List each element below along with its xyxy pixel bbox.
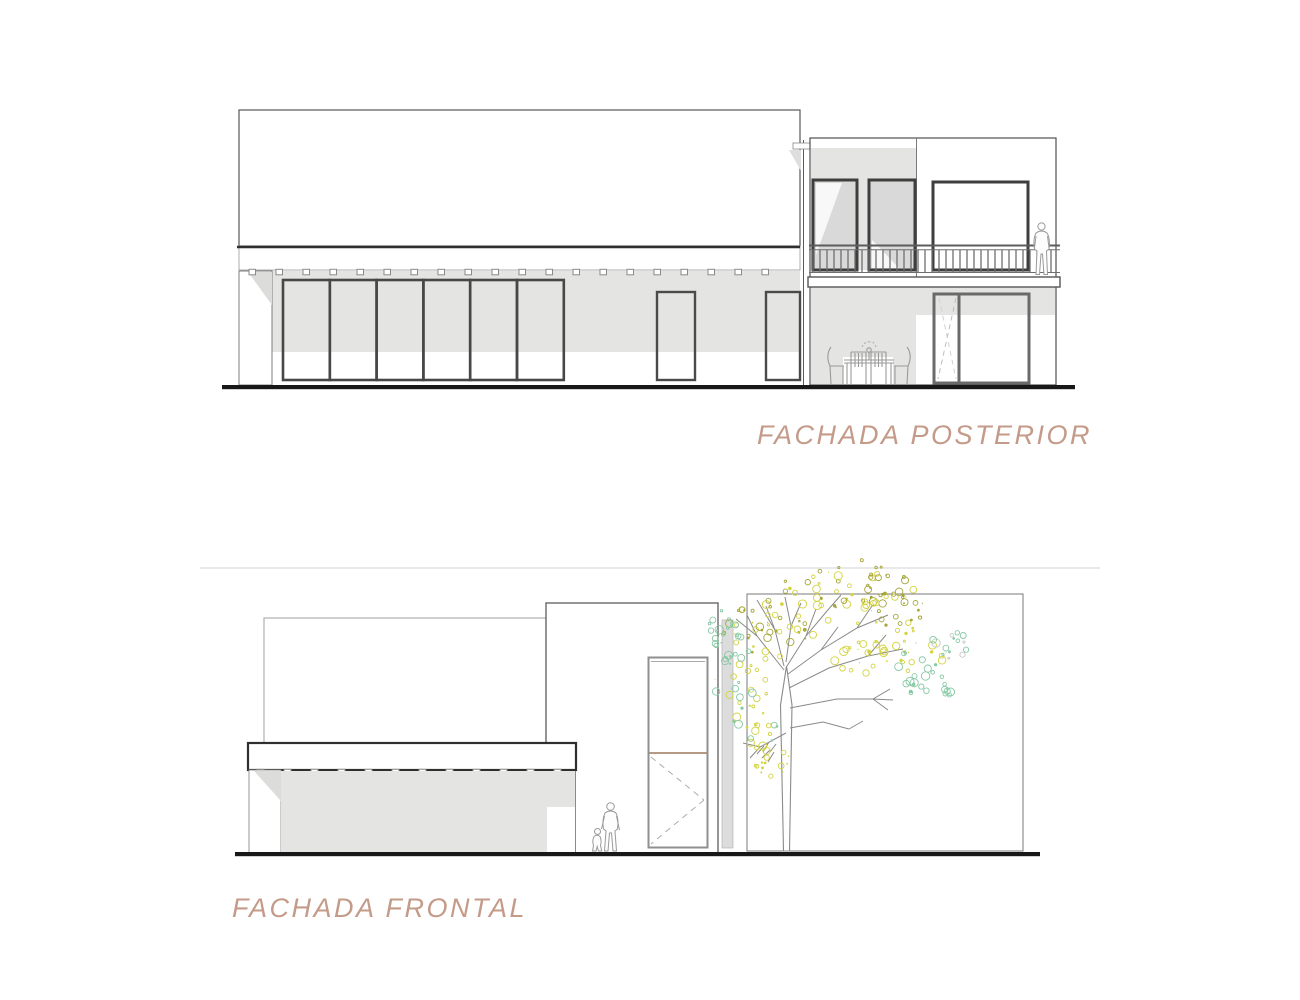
entry-door <box>649 658 708 848</box>
frontal-back-wall <box>264 618 546 744</box>
frontal-side-fin <box>722 620 733 848</box>
posterior-upper-volume <box>239 110 800 246</box>
elevations-drawing: FACHADA POSTERIOR <box>0 0 1300 1000</box>
frontal-garage-wall <box>281 771 575 853</box>
posterior-ground-line <box>222 385 1075 389</box>
architectural-sheet: FACHADA POSTERIOR <box>0 0 1300 1000</box>
posterior-elevation: FACHADA POSTERIOR <box>222 110 1092 450</box>
posterior-title: FACHADA POSTERIOR <box>757 420 1092 450</box>
frontal-garage-wall-notch <box>547 807 575 853</box>
posterior-fascia-band <box>239 246 800 270</box>
frontal-ground-line <box>235 852 1040 856</box>
frontal-canopy <box>248 743 576 770</box>
frontal-elevation: FACHADA FRONTAL <box>200 559 1100 923</box>
balcony-slab <box>808 277 1060 287</box>
frontal-title: FACHADA FRONTAL <box>232 893 527 923</box>
posterior-wall-shade <box>272 271 800 352</box>
two-storey-ledge <box>793 143 810 149</box>
